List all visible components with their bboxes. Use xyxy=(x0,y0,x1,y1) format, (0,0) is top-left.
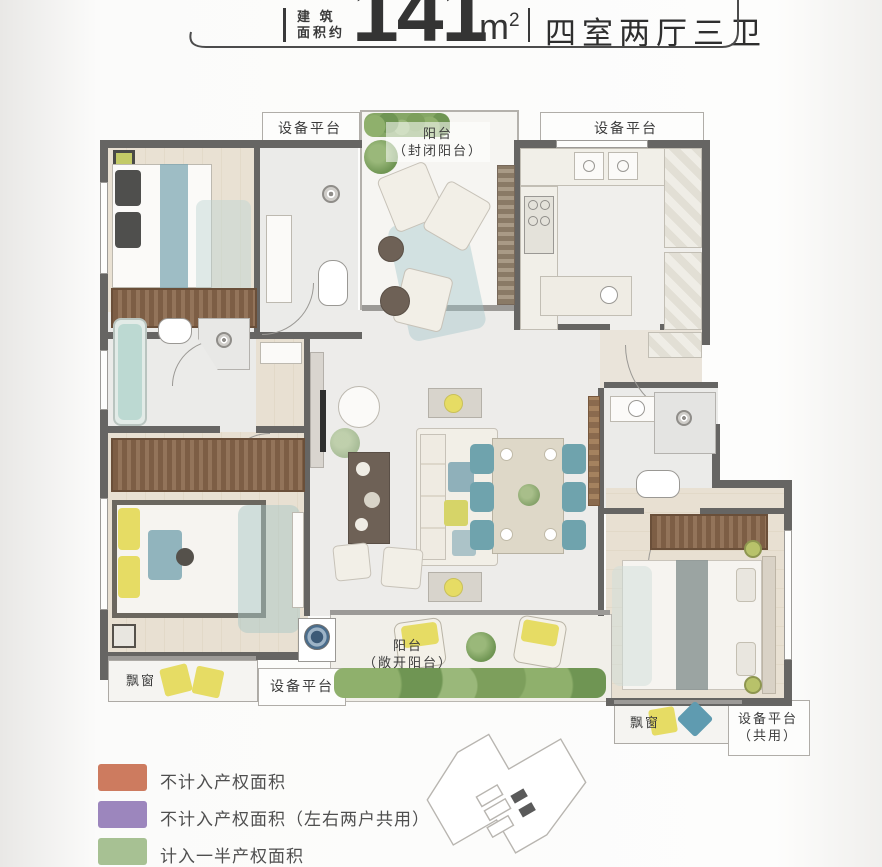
window xyxy=(100,182,108,274)
centerpiece xyxy=(518,484,540,506)
rug xyxy=(612,566,652,686)
label-line: （敞开阳台） xyxy=(363,654,453,671)
burner xyxy=(528,216,538,226)
window xyxy=(556,140,648,148)
shower-head-icon xyxy=(216,332,232,348)
bowl xyxy=(444,578,463,597)
dining-chair xyxy=(562,520,586,550)
sink-basin xyxy=(617,160,629,172)
wardrobe xyxy=(111,438,305,492)
pillow xyxy=(118,556,140,598)
toilet xyxy=(318,260,348,306)
shelf xyxy=(497,165,515,305)
pillow xyxy=(736,642,756,676)
plant xyxy=(466,632,496,662)
lamp xyxy=(744,540,762,558)
wall xyxy=(604,508,644,514)
basin xyxy=(628,400,645,417)
floorplan-poster: 建 筑 面积约 141 m2 四室两厅三卫 xyxy=(0,0,882,860)
fridge xyxy=(664,252,702,330)
pod-chair xyxy=(338,386,380,428)
tv-console xyxy=(292,512,304,608)
tv xyxy=(320,390,326,452)
label-equip-top-left: 设备平台 xyxy=(266,115,354,141)
legend-label: 不计入产权面积（左右两户共用） xyxy=(160,805,430,830)
bowl xyxy=(444,394,463,413)
ottoman xyxy=(332,542,372,582)
window xyxy=(100,350,108,410)
wall xyxy=(712,480,790,488)
shower-head-icon xyxy=(676,410,692,426)
label-equip-top-right: 设备平台 xyxy=(582,115,670,141)
pillow xyxy=(115,212,141,248)
legend-swatch-orange xyxy=(98,764,147,791)
dining-chair xyxy=(470,444,494,474)
place-setting xyxy=(544,528,557,541)
sink-basin xyxy=(583,160,595,172)
label-line: 阳台 xyxy=(393,637,423,654)
side-table xyxy=(378,236,404,262)
tableware xyxy=(356,462,370,476)
window xyxy=(100,498,108,610)
bed-runner xyxy=(160,164,188,288)
cabinet xyxy=(260,342,302,364)
burner xyxy=(540,200,550,210)
label-equip-bottom: 设备平台 xyxy=(262,672,342,700)
building-key-plan xyxy=(420,725,595,860)
nightstand xyxy=(112,624,136,648)
decor xyxy=(176,548,194,566)
legend-label: 不计入产权面积 xyxy=(160,768,286,793)
burner xyxy=(528,200,538,210)
tall-cabinet xyxy=(664,148,702,248)
bathtub-water xyxy=(118,324,142,420)
dining-chair xyxy=(562,482,586,512)
display-shelf xyxy=(588,396,600,506)
label-line: 阳台 xyxy=(423,125,453,142)
label-equip-shared: 设备平台 （共用） xyxy=(730,704,806,750)
cushion xyxy=(444,500,468,526)
pillow xyxy=(736,568,756,602)
headboard xyxy=(762,556,776,694)
shoe-cabinet xyxy=(648,332,702,358)
island-sink xyxy=(600,286,618,304)
label-bay-window-right: 飘窗 xyxy=(622,710,668,734)
sofa-seats xyxy=(420,434,446,560)
label-balcony-top: 阳台 （封闭阳台） xyxy=(386,122,490,162)
legend-label: 计入一半产权面积 xyxy=(160,842,304,867)
label-balcony-bottom: 阳台 （敞开阳台） xyxy=(356,634,460,674)
toilet xyxy=(636,470,680,498)
window-sill xyxy=(108,656,256,660)
vanity xyxy=(266,215,292,303)
pillow xyxy=(191,665,224,698)
kitchen-island xyxy=(540,276,632,316)
rug xyxy=(238,505,300,633)
dining-chair xyxy=(562,444,586,474)
place-setting xyxy=(500,528,513,541)
dining-chair xyxy=(470,482,494,512)
window xyxy=(784,530,792,660)
header-underline xyxy=(0,0,882,60)
window-sill xyxy=(614,700,742,704)
window-wall xyxy=(330,610,610,615)
wall xyxy=(702,140,710,345)
label-line: （封闭阳台） xyxy=(393,142,483,159)
lamp xyxy=(744,676,762,694)
wall xyxy=(256,426,310,433)
shower-head-icon xyxy=(322,185,340,203)
wall xyxy=(100,140,362,148)
tableware xyxy=(355,518,368,531)
tableware xyxy=(364,492,380,508)
pillow xyxy=(118,508,140,550)
label-bay-window-left: 飘窗 xyxy=(118,668,164,692)
burner xyxy=(540,216,550,226)
bed-runner xyxy=(676,560,708,690)
wall xyxy=(100,426,220,433)
place-setting xyxy=(544,448,557,461)
legend-swatch-purple xyxy=(98,801,147,828)
dining-chair xyxy=(470,520,494,550)
toilet xyxy=(158,318,192,344)
washer-drum xyxy=(304,624,330,650)
legend-swatch-green xyxy=(98,838,147,865)
side-table xyxy=(380,286,410,316)
ottoman xyxy=(380,546,423,589)
label-line: 设备平台 xyxy=(738,710,798,727)
label-line: （共用） xyxy=(738,727,798,744)
pillow xyxy=(115,170,141,206)
place-setting xyxy=(500,448,513,461)
